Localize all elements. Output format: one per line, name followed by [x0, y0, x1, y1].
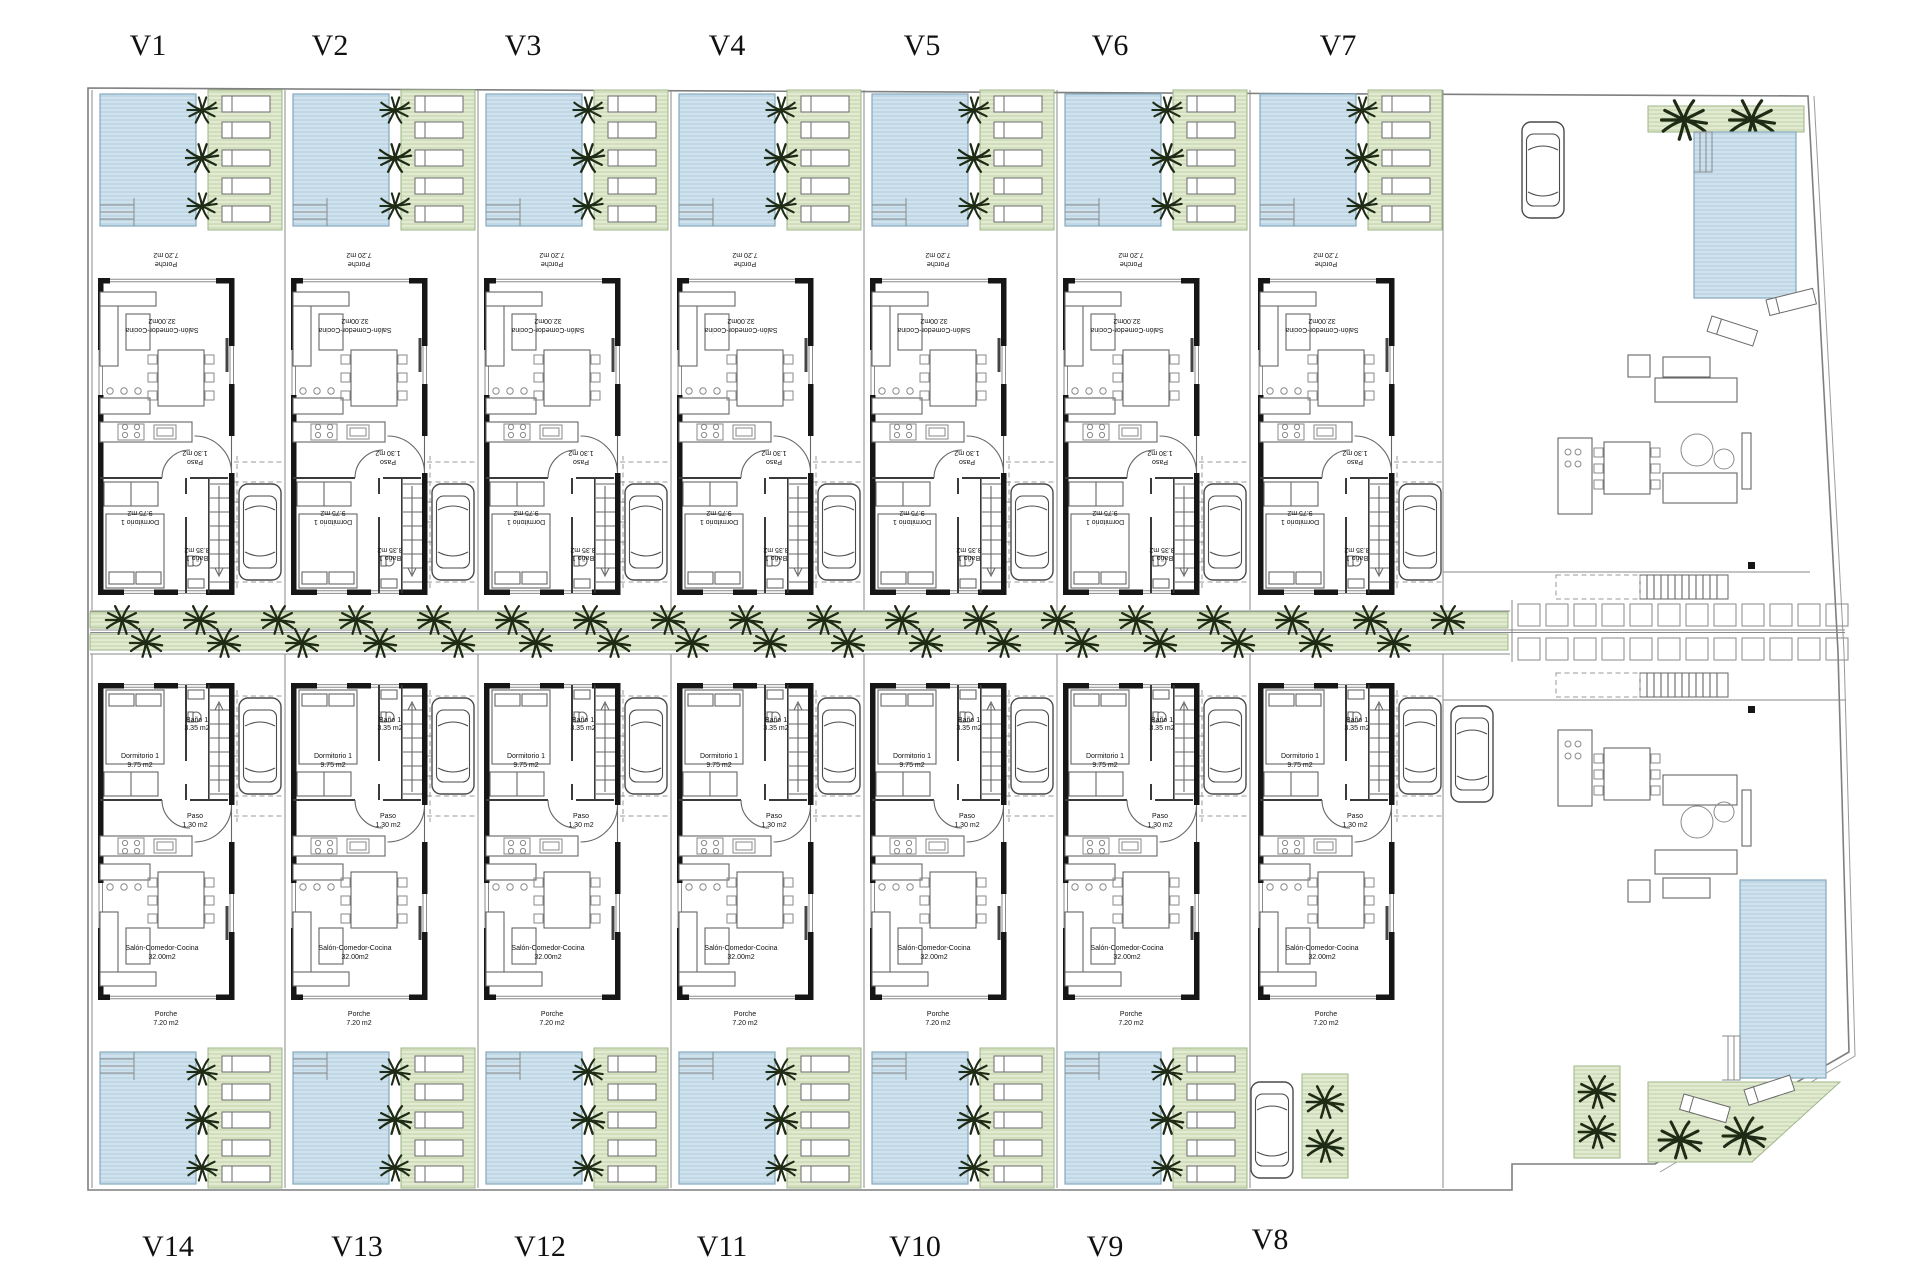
tv-panel	[805, 338, 808, 372]
room-area-salon: 32.00m2	[920, 317, 947, 324]
room-label-salon: Salón-Comedor-Cocina	[1090, 326, 1163, 333]
room-label-paso: Paso	[1152, 813, 1168, 820]
villa-label-v3: V3	[505, 29, 542, 62]
room-area-porche: 7.20 m2	[346, 251, 371, 258]
parked-car	[625, 484, 667, 580]
villa-yard	[100, 1048, 282, 1188]
villa-plan-v6: Dormitorio 1 9.75 m2 Baño 1 3.35 m2 Paso…	[1063, 90, 1247, 595]
sun-lounger	[222, 96, 270, 112]
room-area-salon: 32.00m2	[1113, 317, 1140, 324]
room-area-bano: 3.35 m2	[377, 725, 402, 732]
villa-core: Dormitorio 1 9.75 m2 Baño 1 3.35 m2 Paso…	[484, 683, 668, 1027]
villa-yard	[293, 90, 475, 230]
sun-lounger	[1382, 150, 1430, 166]
villa-core: Dormitorio 1 9.75 m2 Baño 1 3.35 m2 Paso…	[1063, 683, 1247, 1027]
staircase	[1370, 696, 1389, 794]
sun-lounger	[994, 150, 1042, 166]
room-area-bano: 3.35 m2	[763, 546, 788, 553]
room-label-dormitorio: Dormitorio 1	[314, 518, 352, 525]
room-area-bano: 3.35 m2	[570, 725, 595, 732]
pool-steps	[1722, 1036, 1740, 1080]
paving-tile	[1742, 638, 1764, 660]
villa-core: Dormitorio 1 9.75 m2 Baño 1 3.35 m2 Paso…	[98, 683, 282, 1027]
villa-yard	[486, 1048, 668, 1188]
bath-sink	[1348, 690, 1364, 699]
kitchen-counter	[293, 422, 385, 442]
room-area-porche: 7.20 m2	[1118, 1020, 1143, 1027]
room-area-salon: 32.00m2	[1308, 954, 1335, 961]
kitchen-island	[1065, 388, 1115, 414]
sun-lounger	[608, 178, 656, 194]
room-label-porche: Porche	[927, 1011, 949, 1018]
bath-sink	[767, 579, 783, 588]
room-area-salon: 32.00m2	[1113, 954, 1140, 961]
room-area-paso: 1.30 m2	[375, 449, 400, 456]
room-area-dormitorio: 9.75 m2	[899, 762, 924, 769]
bath-sink	[381, 579, 397, 588]
room-label-salon: Salón-Comedor-Cocina	[1285, 945, 1358, 952]
room-label-porche: Porche	[348, 260, 370, 267]
glass-slider	[1075, 279, 1181, 282]
room-area-dormitorio: 9.75 m2	[706, 509, 731, 516]
room-label-paso: Paso	[573, 813, 589, 820]
paving-tile	[1630, 604, 1652, 626]
room-area-bano: 3.35 m2	[570, 546, 595, 553]
sun-lounger	[415, 150, 463, 166]
room-label-salon: Salón-Comedor-Cocina	[318, 326, 391, 333]
room-label-dormitorio: Dormitorio 1	[1086, 518, 1124, 525]
room-area-porche: 7.20 m2	[153, 1020, 178, 1027]
sun-lounger	[1187, 150, 1235, 166]
paving-tile	[1602, 604, 1624, 626]
bath-sink	[1348, 579, 1364, 588]
bath-sink	[767, 690, 783, 699]
room-label-dormitorio: Dormitorio 1	[121, 753, 159, 760]
window	[809, 894, 813, 932]
parked-car	[1251, 1082, 1293, 1178]
room-area-dormitorio: 9.75 m2	[706, 762, 731, 769]
swimming-pool	[679, 1052, 775, 1184]
sun-lounger	[1187, 1056, 1235, 1072]
parked-car	[432, 698, 474, 794]
sun-lounger	[994, 122, 1042, 138]
villa-core: Dormitorio 1 9.75 m2 Baño 1 3.35 m2 Paso…	[870, 251, 1054, 595]
sun-lounger	[994, 1112, 1042, 1128]
villa-yard	[486, 90, 668, 230]
sun-lounger	[801, 150, 849, 166]
sun-lounger	[801, 1112, 849, 1128]
villa-yard	[1260, 90, 1442, 230]
parked-car	[432, 484, 474, 580]
kitchen-counter	[100, 422, 192, 442]
room-label-bano: Baño 1	[379, 717, 401, 724]
sun-lounger	[994, 1166, 1042, 1182]
swimming-pool	[679, 94, 775, 226]
sun-lounger	[1187, 96, 1235, 112]
room-label-paso: Paso	[766, 458, 782, 465]
bath-sink	[960, 579, 976, 588]
villa-label-v6: V6	[1092, 29, 1129, 62]
room-area-salon: 32.00m2	[727, 317, 754, 324]
room-area-dormitorio: 9.75 m2	[127, 509, 152, 516]
villa-plan-v3: Dormitorio 1 9.75 m2 Baño 1 3.35 m2 Paso…	[484, 90, 668, 595]
sun-lounger	[222, 1140, 270, 1156]
villa-plan-v8: Dormitorio 1 9.75 m2 Baño 1 3.35 m2 Paso…	[1258, 683, 1442, 1027]
villa-core: Dormitorio 1 9.75 m2 Baño 1 3.35 m2 Paso…	[291, 683, 475, 1027]
staircase	[210, 696, 229, 794]
room-area-bano: 3.35 m2	[1344, 546, 1369, 553]
sun-lounger	[608, 206, 656, 222]
room-area-salon: 32.00m2	[148, 317, 175, 324]
room-label-dormitorio: Dormitorio 1	[121, 518, 159, 525]
room-label-dormitorio: Dormitorio 1	[700, 518, 738, 525]
villa-label-v11: V11	[697, 1230, 748, 1263]
tv-panel	[1191, 338, 1194, 372]
bath-sink	[574, 579, 590, 588]
sun-lounger	[222, 1084, 270, 1100]
window	[616, 346, 620, 384]
kitchen-island	[679, 388, 729, 414]
glass-slider	[882, 279, 988, 282]
room-label-dormitorio: Dormitorio 1	[1281, 753, 1319, 760]
glass-slider	[689, 996, 795, 999]
villa-core: Dormitorio 1 9.75 m2 Baño 1 3.35 m2 Paso…	[870, 683, 1054, 1027]
sun-lounger	[1187, 1140, 1235, 1156]
room-label-salon: Salón-Comedor-Cocina	[511, 326, 584, 333]
parked-car	[625, 698, 667, 794]
room-area-paso: 1.30 m2	[1342, 822, 1367, 829]
room-area-porche: 7.20 m2	[539, 1020, 564, 1027]
paving-tile	[1714, 638, 1736, 660]
paving-tile	[1518, 604, 1540, 626]
room-area-dormitorio: 9.75 m2	[1287, 509, 1312, 516]
room-area-porche: 7.20 m2	[1313, 251, 1338, 258]
sun-lounger	[222, 178, 270, 194]
site-plan: Dormitorio 1 9.75 m2 Baño 1 3.35 m2 Paso…	[0, 0, 1920, 1280]
terrace-furniture	[1558, 730, 1751, 902]
room-label-bano: Baño 1	[958, 554, 980, 561]
window	[230, 346, 234, 384]
sun-lounger	[801, 1166, 849, 1182]
room-area-dormitorio: 9.75 m2	[320, 509, 345, 516]
sun-lounger	[415, 1166, 463, 1182]
paving-tile	[1658, 604, 1680, 626]
room-label-bano: Baño 1	[958, 717, 980, 724]
room-area-dormitorio: 9.75 m2	[127, 762, 152, 769]
window	[809, 346, 813, 384]
window	[230, 894, 234, 932]
room-label-bano: Baño 1	[765, 554, 787, 561]
room-area-bano: 3.35 m2	[1344, 725, 1369, 732]
room-area-porche: 7.20 m2	[1118, 251, 1143, 258]
room-area-porche: 7.20 m2	[539, 251, 564, 258]
sun-lounger	[222, 1112, 270, 1128]
villa-plan-v1: Dormitorio 1 9.75 m2 Baño 1 3.35 m2 Paso…	[98, 90, 282, 595]
villa-plan-v2: Dormitorio 1 9.75 m2 Baño 1 3.35 m2 Paso…	[291, 90, 475, 595]
dining-table	[534, 872, 600, 928]
tv-panel	[612, 338, 615, 372]
swimming-pool	[293, 94, 389, 226]
room-area-paso: 1.30 m2	[375, 822, 400, 829]
room-label-paso: Paso	[1347, 458, 1363, 465]
window	[1195, 346, 1199, 384]
room-area-salon: 32.00m2	[148, 954, 175, 961]
room-label-dormitorio: Dormitorio 1	[507, 518, 545, 525]
room-label-paso: Paso	[959, 813, 975, 820]
room-area-dormitorio: 9.75 m2	[513, 509, 538, 516]
sun-lounger	[1707, 316, 1758, 346]
room-area-porche: 7.20 m2	[153, 251, 178, 258]
glass-slider	[882, 996, 988, 999]
villa-core: Dormitorio 1 9.75 m2 Baño 1 3.35 m2 Paso…	[291, 251, 475, 595]
room-area-bano: 3.35 m2	[1149, 546, 1174, 553]
paving-tile	[1798, 638, 1820, 660]
staircase	[1370, 484, 1389, 582]
kitchen-island	[1065, 864, 1115, 890]
villa-label-v13: V13	[331, 1230, 383, 1263]
dining-table	[341, 872, 407, 928]
swimming-pool	[486, 1052, 582, 1184]
room-label-bano: Baño 1	[1151, 717, 1173, 724]
tv-panel	[226, 338, 229, 372]
sun-lounger	[222, 206, 270, 222]
bath-sink	[188, 690, 204, 699]
staircase	[596, 484, 615, 582]
room-label-paso: Paso	[380, 458, 396, 465]
window	[616, 894, 620, 932]
sun-lounger	[222, 1166, 270, 1182]
room-label-bano: Baño 1	[186, 717, 208, 724]
room-area-salon: 32.00m2	[534, 317, 561, 324]
room-label-bano: Baño 1	[572, 554, 594, 561]
room-label-bano: Baño 1	[572, 717, 594, 724]
sun-lounger	[801, 1140, 849, 1156]
sun-lounger	[415, 206, 463, 222]
glass-slider	[110, 996, 216, 999]
kitchen-island	[100, 864, 150, 890]
villa-label-v10: V10	[889, 1230, 941, 1263]
sun-lounger	[415, 178, 463, 194]
dining-table	[727, 350, 793, 406]
window	[1390, 346, 1394, 384]
paving-tile	[1798, 604, 1820, 626]
glass-slider	[1270, 279, 1376, 282]
staircase	[210, 484, 229, 582]
garden-strip	[1574, 1066, 1620, 1158]
villa-plan-v9: Dormitorio 1 9.75 m2 Baño 1 3.35 m2 Paso…	[1063, 683, 1247, 1188]
room-label-paso: Paso	[1347, 813, 1363, 820]
window	[1390, 894, 1394, 932]
room-label-salon: Salón-Comedor-Cocina	[897, 326, 970, 333]
room-label-salon: Salón-Comedor-Cocina	[125, 326, 198, 333]
villa-label-v9: V9	[1087, 1230, 1124, 1263]
window	[423, 894, 427, 932]
dining-table	[148, 872, 214, 928]
room-area-paso: 1.30 m2	[954, 449, 979, 456]
tv-panel	[1386, 906, 1389, 940]
villa-yard	[872, 1048, 1054, 1188]
outdoor-stairs	[1556, 575, 1728, 599]
room-label-bano: Baño 1	[379, 554, 401, 561]
room-area-salon: 32.00m2	[1308, 317, 1335, 324]
sun-lounger	[222, 1056, 270, 1072]
sun-lounger	[608, 122, 656, 138]
kitchen-counter	[1260, 422, 1352, 442]
parked-car	[1204, 698, 1246, 794]
room-label-dormitorio: Dormitorio 1	[700, 753, 738, 760]
room-area-paso: 1.30 m2	[1147, 449, 1172, 456]
sun-lounger	[801, 122, 849, 138]
sun-lounger	[608, 96, 656, 112]
room-label-porche: Porche	[155, 260, 177, 267]
paving-tile	[1602, 638, 1624, 660]
villa-yard	[679, 90, 861, 230]
villa-core: Dormitorio 1 9.75 m2 Baño 1 3.35 m2 Paso…	[677, 683, 861, 1027]
dining-table	[1113, 350, 1179, 406]
staircase	[403, 484, 422, 582]
room-area-dormitorio: 9.75 m2	[513, 762, 538, 769]
staircase	[1175, 484, 1194, 582]
room-area-porche: 7.20 m2	[732, 1020, 757, 1027]
room-area-salon: 32.00m2	[534, 954, 561, 961]
kitchen-island	[293, 388, 343, 414]
swimming-pool	[293, 1052, 389, 1184]
room-area-dormitorio: 9.75 m2	[1092, 509, 1117, 516]
room-label-porche: Porche	[541, 1011, 563, 1018]
room-label-salon: Salón-Comedor-Cocina	[511, 945, 584, 952]
room-label-salon: Salón-Comedor-Cocina	[125, 945, 198, 952]
room-label-paso: Paso	[766, 813, 782, 820]
room-label-bano: Baño 1	[1346, 717, 1368, 724]
glass-slider	[303, 996, 409, 999]
dining-table	[341, 350, 407, 406]
room-area-dormitorio: 9.75 m2	[899, 509, 924, 516]
villa-plan-v14: Dormitorio 1 9.75 m2 Baño 1 3.35 m2 Paso…	[98, 683, 282, 1188]
parked-car	[1399, 484, 1441, 580]
paving-tile	[1742, 604, 1764, 626]
tv-panel	[1191, 906, 1194, 940]
sun-lounger	[608, 1140, 656, 1156]
room-area-bano: 3.35 m2	[956, 725, 981, 732]
parked-car	[1204, 484, 1246, 580]
kitchen-island	[100, 388, 150, 414]
glass-slider	[496, 279, 602, 282]
villa-label-v12: V12	[514, 1230, 566, 1263]
kitchen-island	[293, 864, 343, 890]
kitchen-counter	[1065, 836, 1157, 856]
sun-lounger	[1187, 1112, 1235, 1128]
villa-core: Dormitorio 1 9.75 m2 Baño 1 3.35 m2 Paso…	[98, 251, 282, 595]
room-area-bano: 3.35 m2	[184, 725, 209, 732]
bath-sink	[381, 690, 397, 699]
kitchen-island	[679, 864, 729, 890]
kitchen-island	[1260, 864, 1310, 890]
tv-panel	[998, 338, 1001, 372]
swimming-pool	[1065, 1052, 1161, 1184]
bath-sink	[1153, 690, 1169, 699]
glass-slider	[1270, 996, 1376, 999]
paving-tile	[1518, 638, 1540, 660]
sun-lounger	[801, 206, 849, 222]
room-area-dormitorio: 9.75 m2	[1092, 762, 1117, 769]
paving-tile	[1770, 604, 1792, 626]
room-label-porche: Porche	[1120, 260, 1142, 267]
villa-label-v5: V5	[904, 29, 941, 62]
villa-yard	[293, 1048, 475, 1188]
villa-label-v8: V8	[1252, 1223, 1289, 1256]
sun-lounger	[1187, 1166, 1235, 1182]
room-area-bano: 3.35 m2	[184, 546, 209, 553]
paving-tile	[1686, 638, 1708, 660]
sun-lounger	[415, 1140, 463, 1156]
sun-lounger	[1187, 206, 1235, 222]
staircase	[403, 696, 422, 794]
tv-panel	[1386, 338, 1389, 372]
villa-plan-v4: Dormitorio 1 9.75 m2 Baño 1 3.35 m2 Paso…	[677, 90, 861, 595]
villa-v7-wing	[1443, 96, 1816, 662]
kitchen-island	[1260, 388, 1310, 414]
parked-car	[239, 484, 281, 580]
sun-lounger	[415, 96, 463, 112]
tv-panel	[226, 906, 229, 940]
staircase	[789, 696, 808, 794]
room-label-dormitorio: Dormitorio 1	[1086, 753, 1124, 760]
room-label-salon: Salón-Comedor-Cocina	[704, 945, 777, 952]
room-label-paso: Paso	[187, 458, 203, 465]
sun-lounger	[608, 1056, 656, 1072]
room-label-dormitorio: Dormitorio 1	[314, 753, 352, 760]
bath-sink	[1153, 579, 1169, 588]
room-area-porche: 7.20 m2	[925, 251, 950, 258]
villa-yard	[1065, 90, 1247, 230]
room-label-bano: Baño 1	[1151, 554, 1173, 561]
plan-svg: Dormitorio 1 9.75 m2 Baño 1 3.35 m2 Paso…	[0, 0, 1920, 1280]
villa-label-v7: V7	[1320, 29, 1357, 62]
window	[423, 346, 427, 384]
swimming-pool	[1260, 94, 1356, 226]
room-area-salon: 32.00m2	[341, 954, 368, 961]
room-area-salon: 32.00m2	[920, 954, 947, 961]
sun-lounger	[608, 150, 656, 166]
tv-panel	[419, 338, 422, 372]
parked-car	[1451, 706, 1493, 802]
tv-panel	[998, 906, 1001, 940]
sun-lounger	[1382, 178, 1430, 194]
villa-yard	[872, 90, 1054, 230]
glass-slider	[689, 279, 795, 282]
villa-label-v2: V2	[312, 29, 349, 62]
staircase	[982, 484, 1001, 582]
staircase	[596, 696, 615, 794]
sun-lounger	[1382, 206, 1430, 222]
sun-lounger	[222, 122, 270, 138]
sun-lounger	[994, 178, 1042, 194]
villa-yard	[1065, 1048, 1247, 1188]
room-label-porche: Porche	[734, 260, 756, 267]
swimming-pool	[486, 94, 582, 226]
kitchen-counter	[293, 836, 385, 856]
swimming-pool	[1065, 94, 1161, 226]
tv-panel	[419, 906, 422, 940]
kitchen-counter	[679, 836, 771, 856]
glass-slider	[496, 996, 602, 999]
room-label-bano: Baño 1	[186, 554, 208, 561]
room-label-dormitorio: Dormitorio 1	[507, 753, 545, 760]
room-label-dormitorio: Dormitorio 1	[893, 753, 931, 760]
kitchen-island	[872, 864, 922, 890]
room-area-porche: 7.20 m2	[925, 1020, 950, 1027]
swimming-pool	[1740, 880, 1826, 1078]
